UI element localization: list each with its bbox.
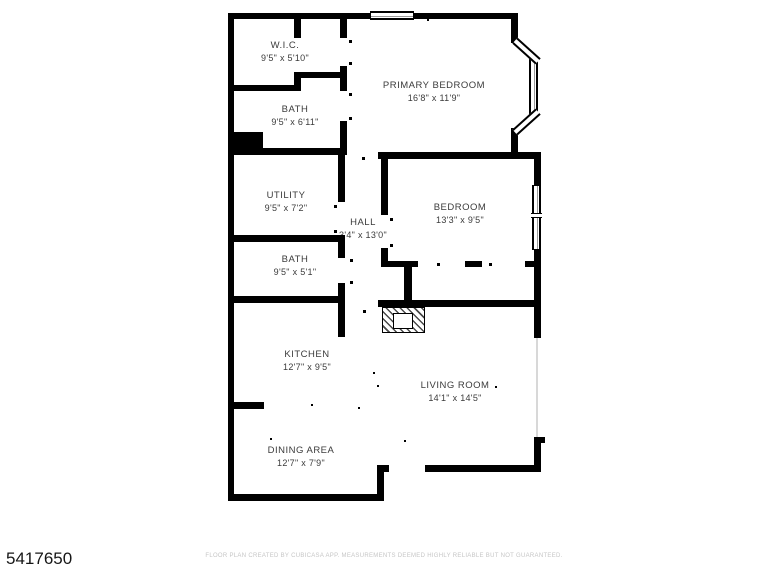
- room-label-utility: UTILITY 9'5" x 7'2": [221, 190, 351, 214]
- plan-tick-mark: [349, 62, 352, 65]
- wall: [338, 242, 345, 258]
- window-top: [370, 11, 414, 20]
- wall: [534, 158, 541, 186]
- plan-tick-mark: [349, 93, 352, 96]
- plan-tick-mark: [334, 230, 337, 233]
- floor-plan-canvas: W.I.C. 9'5" x 5'10" BATH 9'5" x 6'11" PR…: [0, 0, 768, 576]
- plan-tick-mark: [358, 407, 360, 409]
- wall: [340, 13, 347, 38]
- room-dims: 9'5" x 5'1": [230, 267, 360, 278]
- plan-tick-mark: [437, 263, 440, 266]
- plan-tick-mark: [350, 281, 353, 284]
- room-label-bedroom: BEDROOM 13'3" x 9'5": [395, 202, 525, 226]
- room-name: BATH: [230, 104, 360, 115]
- wall: [404, 267, 412, 300]
- wall: [534, 250, 541, 338]
- wall: [378, 300, 541, 307]
- bay-window-upper-diagonal: [512, 38, 540, 65]
- room-dims: 12'7" x 7'9": [236, 458, 366, 469]
- plan-tick-mark: [495, 386, 497, 388]
- wall: [228, 494, 384, 501]
- room-label-primary-bedroom: PRIMARY BEDROOM 16'8" x 11'9": [369, 80, 499, 104]
- room-name: BEDROOM: [395, 202, 525, 213]
- wall: [340, 66, 347, 91]
- bay-window-lower-diagonal: [512, 109, 540, 136]
- wall: [228, 296, 345, 303]
- room-dims: 9'5" x 5'10": [220, 53, 350, 64]
- plan-tick-mark: [489, 263, 492, 266]
- room-name: W.I.C.: [220, 40, 350, 51]
- wall: [381, 155, 388, 215]
- room-name: PRIMARY BEDROOM: [369, 80, 499, 91]
- plan-tick-mark: [349, 40, 352, 43]
- wall: [525, 261, 534, 267]
- room-label-wic: W.I.C. 9'5" x 5'10": [220, 40, 350, 64]
- wall: [294, 13, 301, 38]
- wall: [338, 155, 345, 202]
- plan-tick-mark: [349, 117, 352, 120]
- wall: [425, 465, 541, 472]
- wall: [381, 261, 418, 267]
- room-dims: 12'7" x 9'5": [242, 362, 372, 373]
- wall: [465, 261, 482, 267]
- plan-tick-mark: [377, 385, 379, 387]
- room-name: KITCHEN: [242, 349, 372, 360]
- wall: [338, 303, 345, 337]
- plan-tick-mark: [334, 205, 337, 208]
- room-label-kitchen: KITCHEN 12'7" x 9'5": [242, 349, 372, 373]
- plan-tick-mark: [311, 404, 313, 406]
- filled-fixture: [230, 132, 263, 155]
- room-label-dining-area: DINING AREA 12'7" x 7'9": [236, 445, 366, 469]
- wall: [228, 402, 264, 409]
- room-dims: 14'1" x 14'5": [390, 393, 520, 404]
- plan-tick-mark: [350, 259, 353, 262]
- plan-tick-mark: [404, 440, 406, 442]
- room-dims: 13'3" x 9'5": [395, 215, 525, 226]
- room-label-living-room: LIVING ROOM 14'1" x 14'5": [390, 380, 520, 404]
- wall: [228, 85, 301, 91]
- plan-tick-mark: [373, 372, 375, 374]
- room-dims: 9'5" x 7'2": [221, 203, 351, 214]
- footer-disclaimer: FLOOR PLAN CREATED BY CUBICASA APP. MEAS…: [0, 553, 768, 559]
- wall: [534, 437, 545, 443]
- plan-tick-mark: [390, 218, 393, 221]
- plan-tick-mark: [363, 310, 366, 313]
- plan-tick-mark: [270, 438, 272, 440]
- plan-tick-mark: [390, 244, 393, 247]
- room-name: DINING AREA: [236, 445, 366, 456]
- listing-id: 5417650: [6, 549, 72, 569]
- room-dims: 16'8" x 11'9": [369, 93, 499, 104]
- room-name: LIVING ROOM: [390, 380, 520, 391]
- room-name: UTILITY: [221, 190, 351, 201]
- living-room-window-line: [536, 338, 538, 437]
- plan-tick-mark: [362, 157, 365, 160]
- chimney-flue: [393, 313, 413, 329]
- bay-window-center: [529, 58, 538, 115]
- bedroom-window-divider: [531, 213, 542, 218]
- wall: [228, 235, 345, 242]
- wall: [378, 152, 541, 159]
- plan-tick-mark: [427, 19, 429, 21]
- wall: [294, 72, 347, 78]
- wall: [338, 283, 345, 296]
